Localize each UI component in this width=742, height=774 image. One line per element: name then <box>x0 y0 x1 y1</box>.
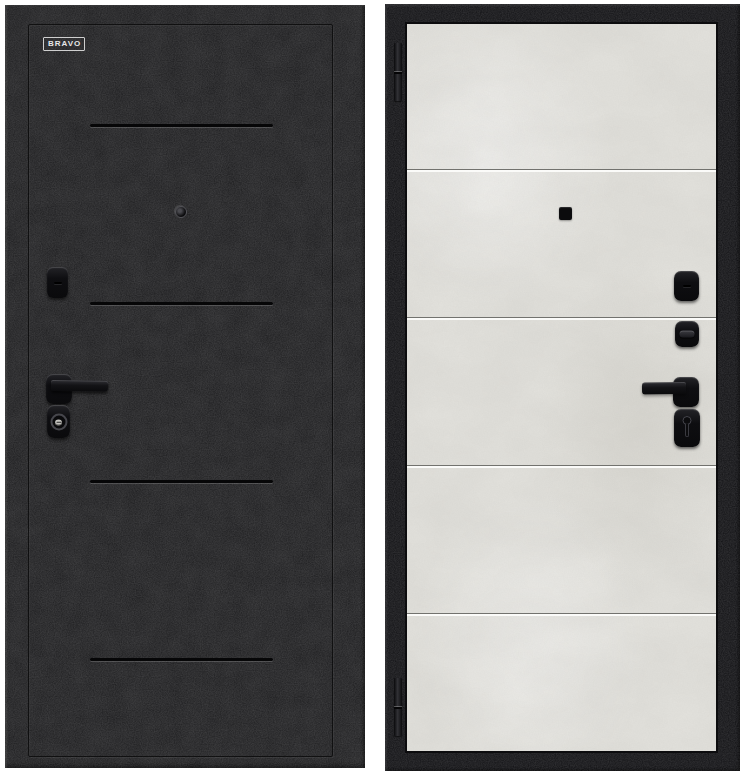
panel-seam-line <box>407 169 716 172</box>
cylinder-ring <box>50 414 67 431</box>
hinge-pin <box>394 72 402 74</box>
groove-line <box>90 124 273 127</box>
groove-line <box>90 480 273 483</box>
key-cylinder <box>47 405 70 438</box>
door-exterior-view: BRAVO <box>5 5 365 768</box>
lever-handle <box>51 380 108 392</box>
peephole-icon <box>175 206 187 218</box>
brand-logo: BRAVO <box>43 37 85 51</box>
lock-cover <box>674 271 699 301</box>
door-product-image: BRAVO <box>0 0 742 774</box>
groove-line <box>90 658 273 661</box>
hinge-pin <box>394 707 402 709</box>
square-peephole-icon <box>559 207 572 220</box>
groove-line <box>90 302 273 305</box>
thumb-turn <box>675 321 699 347</box>
lock-cover <box>47 267 68 298</box>
door-hinge-bottom <box>394 678 402 736</box>
panel-seam-line <box>407 613 716 616</box>
thumb-turn-knob <box>680 331 695 338</box>
lock-slot <box>683 285 691 287</box>
keyhole <box>55 419 62 425</box>
panel-seam-line <box>407 317 716 320</box>
keyhole-slit <box>56 421 61 423</box>
brand-logo-text: BRAVO <box>48 39 81 48</box>
door-hinge-top <box>394 43 402 101</box>
lever-handle <box>642 382 686 395</box>
panel-seam-line <box>407 465 716 468</box>
keyhole-escutcheon <box>674 409 700 447</box>
lock-slot <box>54 282 62 284</box>
keyhole-stem <box>685 424 689 437</box>
door-interior-view <box>385 4 740 771</box>
